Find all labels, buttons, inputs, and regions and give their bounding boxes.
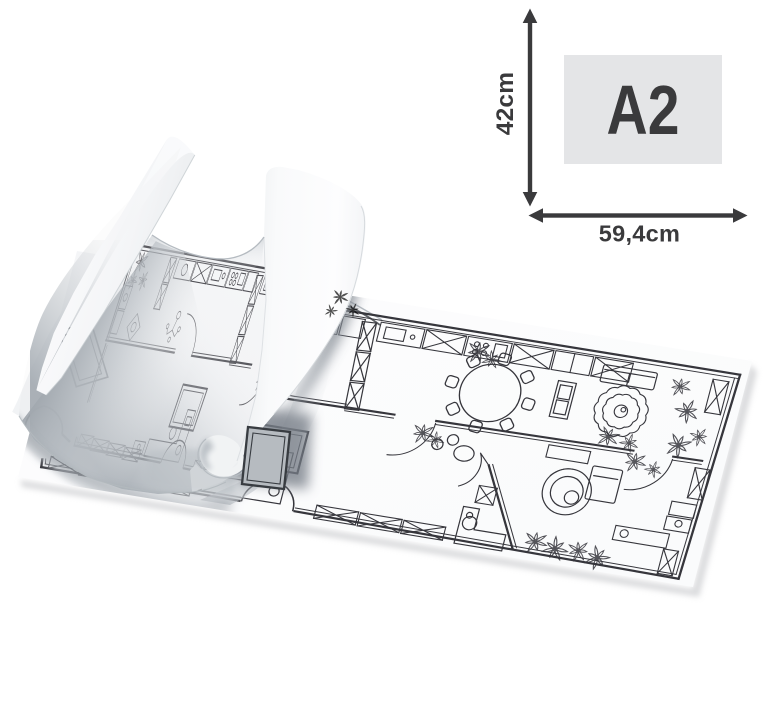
- svg-text:59,4cm: 59,4cm: [599, 221, 681, 247]
- svg-text:42cm: 42cm: [492, 72, 519, 135]
- svg-text:A2: A2: [607, 70, 680, 149]
